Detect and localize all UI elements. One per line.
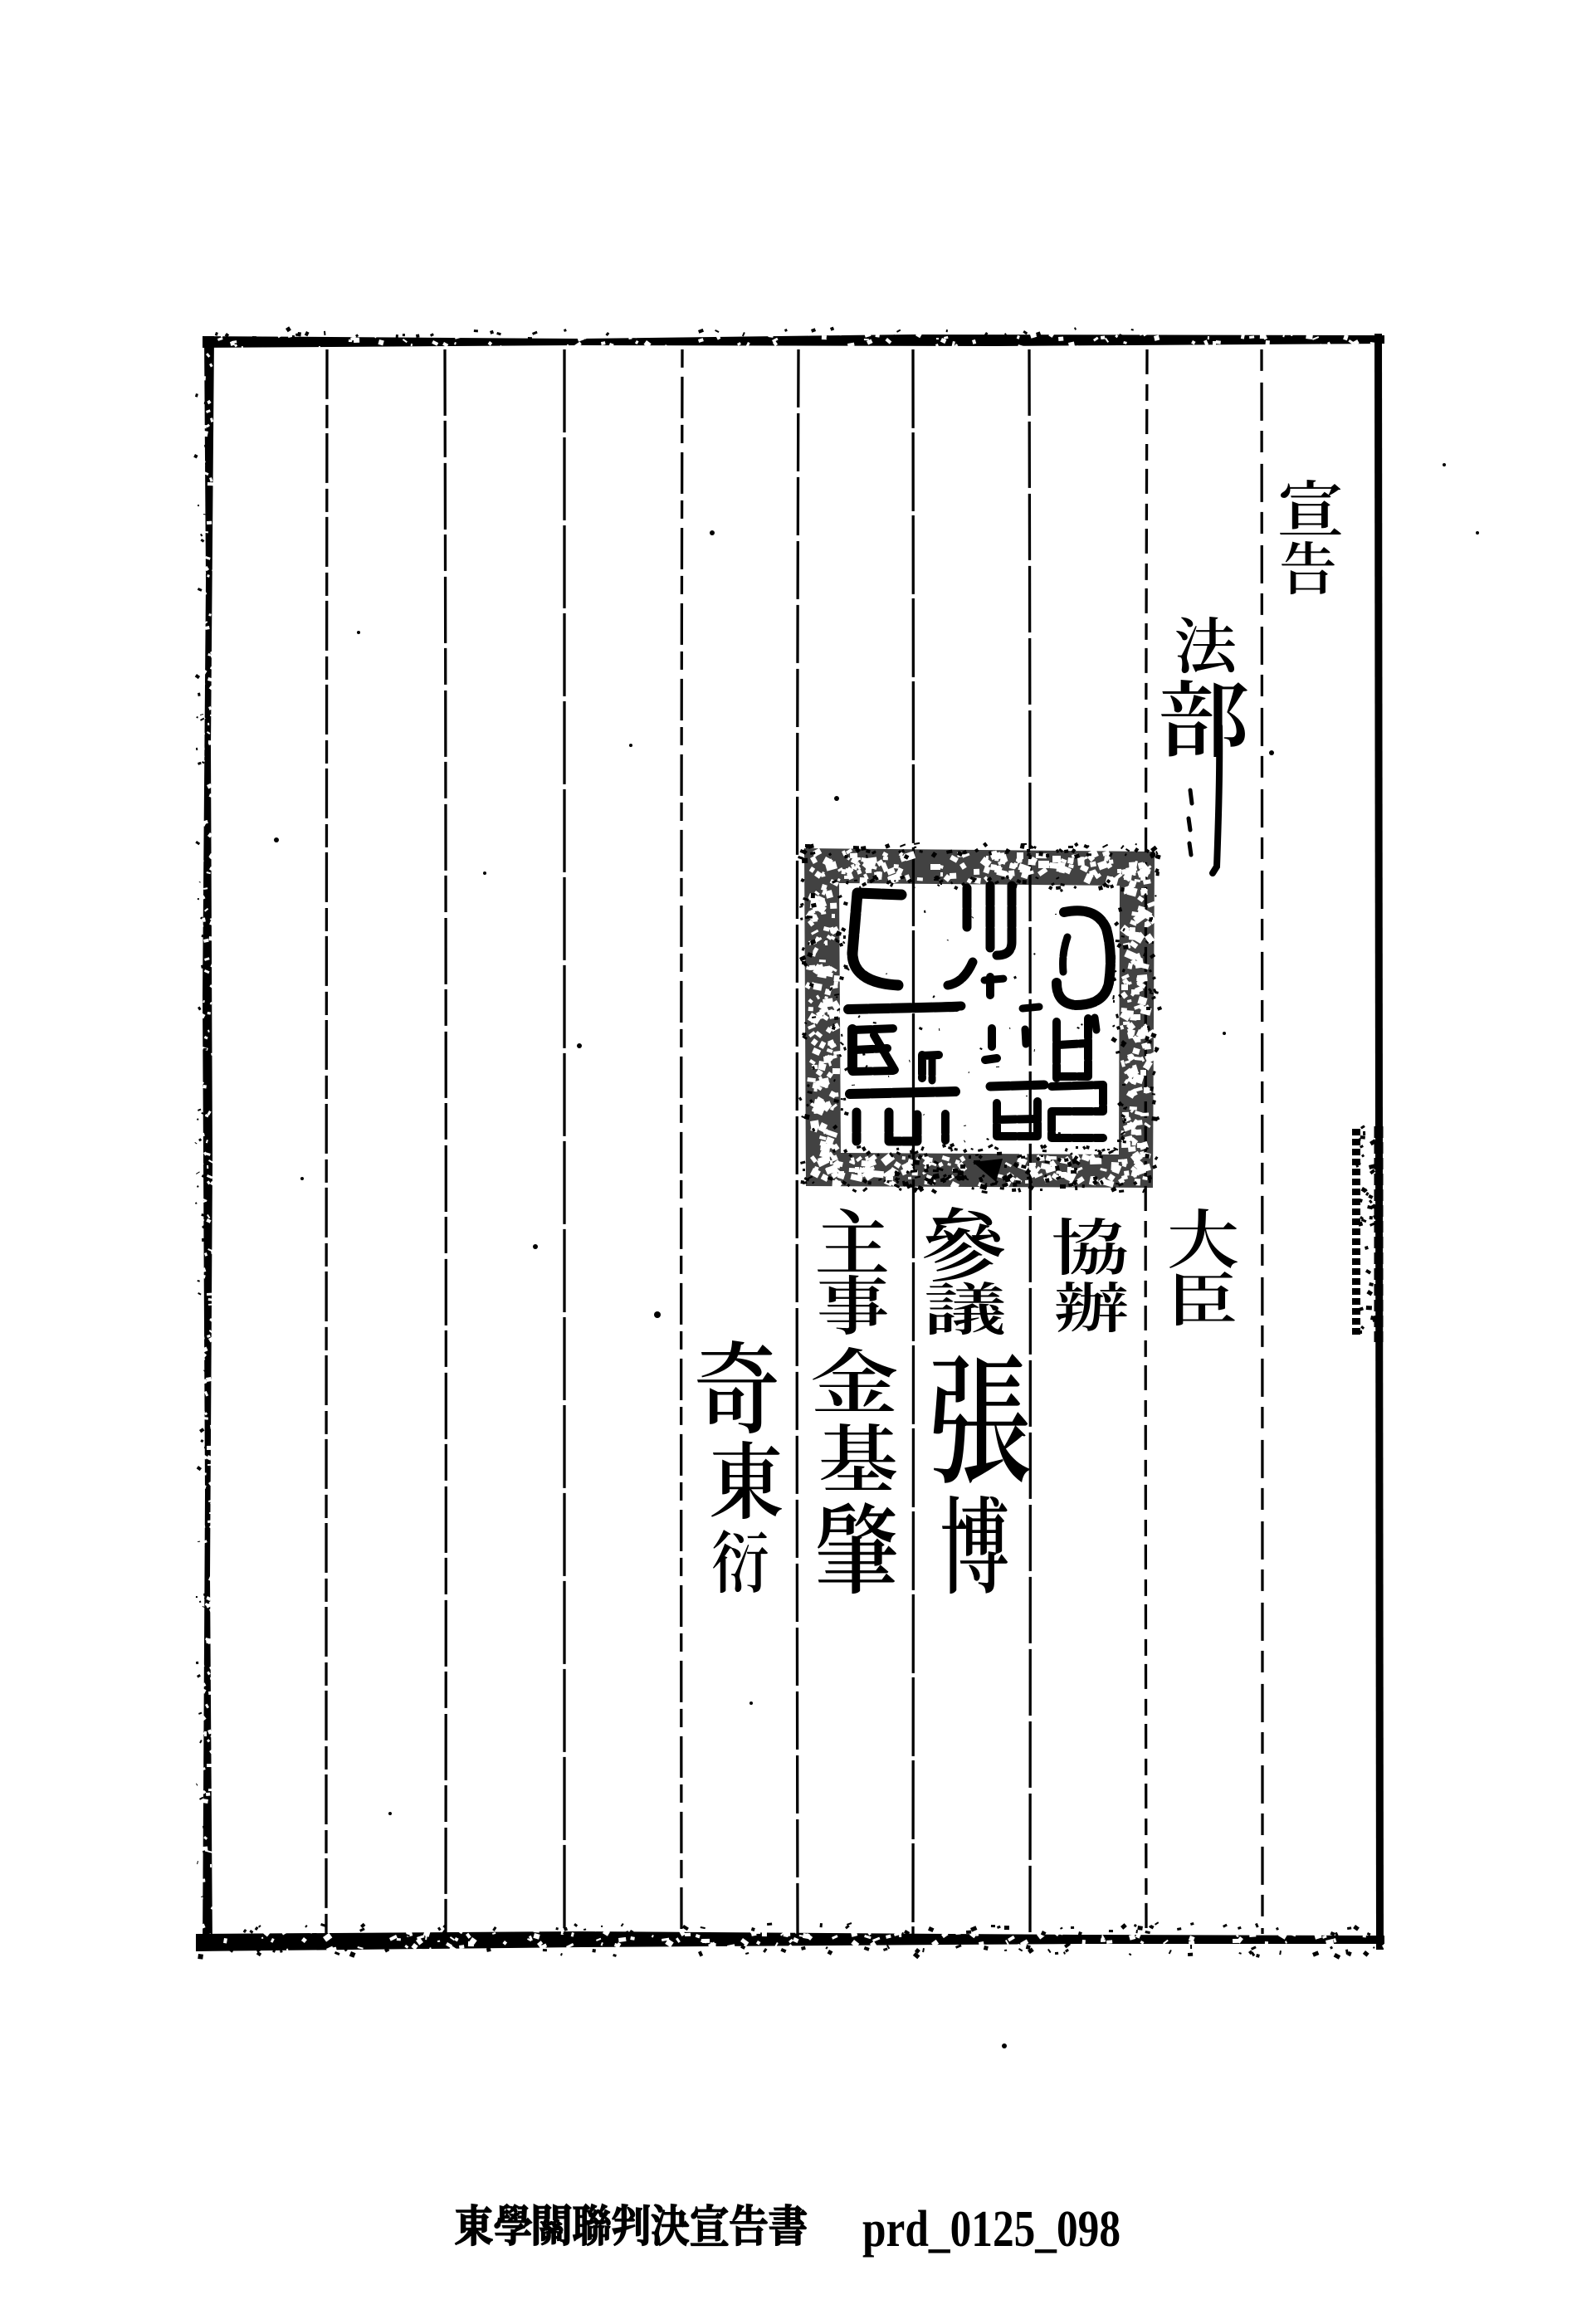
svg-text:prd_0125_098: prd_0125_098 — [862, 2201, 1120, 2258]
